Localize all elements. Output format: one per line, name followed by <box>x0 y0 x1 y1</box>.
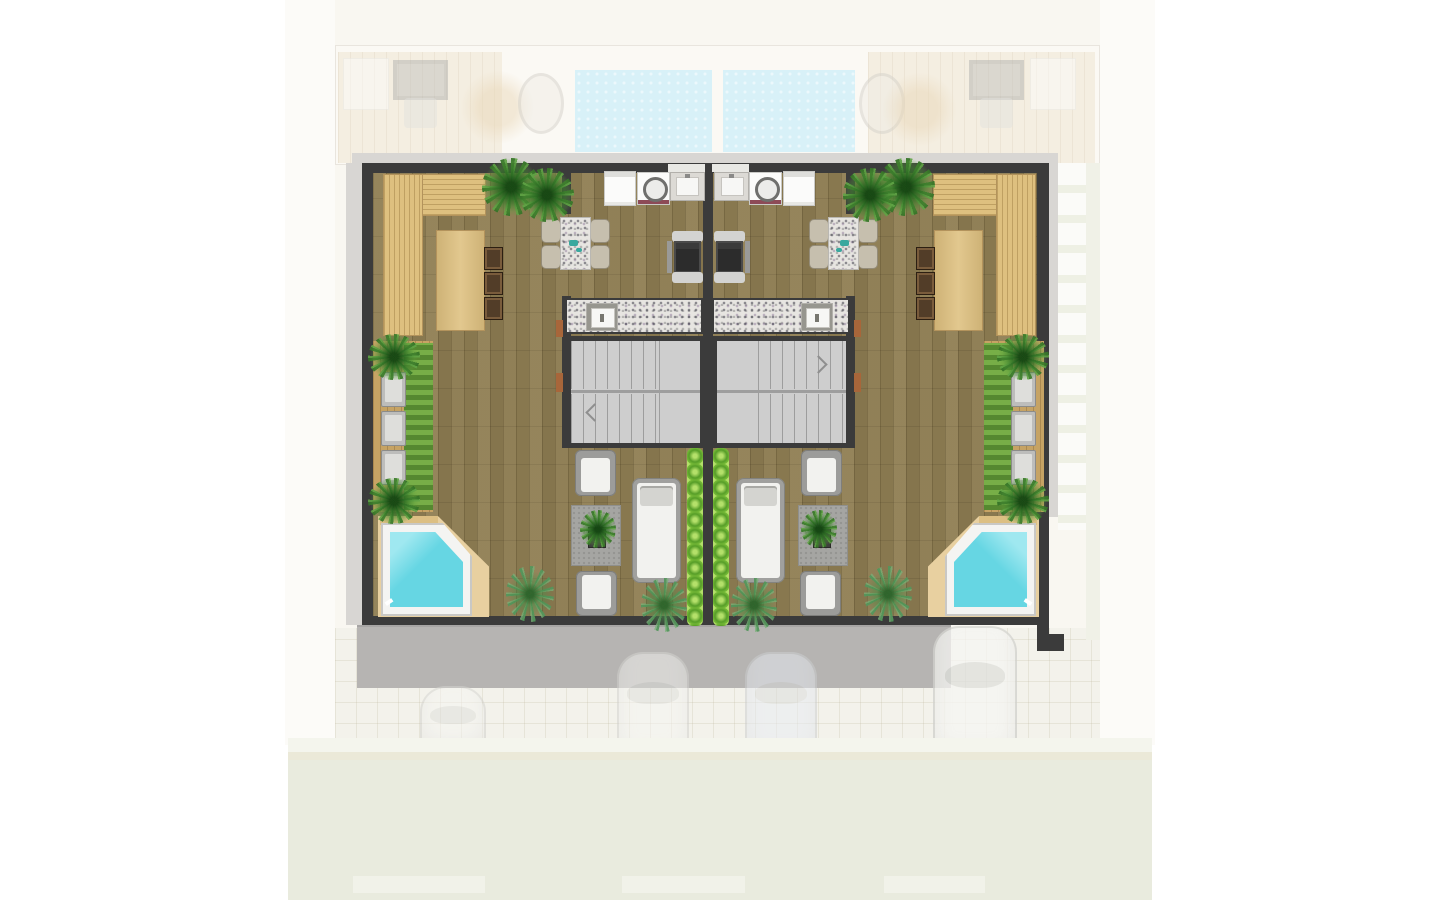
table-decor <box>569 240 578 246</box>
dining-chair <box>590 245 610 269</box>
corner-bench-side-left <box>383 174 423 336</box>
washing-machine-right <box>749 172 782 205</box>
armchair-right-top <box>801 450 842 496</box>
palm-bottom-right-b <box>864 566 912 622</box>
top-trim <box>352 153 1058 163</box>
rug-plant-left <box>580 510 616 548</box>
planter-lounger <box>1011 411 1036 446</box>
dining-chair <box>809 245 829 269</box>
dishwasher-right <box>783 171 815 206</box>
grill-shelf <box>745 241 750 273</box>
armchair-cushion <box>806 575 835 609</box>
dining-chair <box>541 219 561 243</box>
door-jamb-right-a <box>854 320 861 337</box>
sink-basin <box>721 177 744 196</box>
plant-top-right-b <box>843 168 897 222</box>
background-right-strip <box>1100 0 1155 745</box>
right-outer-strip <box>1086 163 1100 640</box>
door-jamb-left-a <box>556 320 563 337</box>
armchair-cushion <box>582 575 611 609</box>
ghost-table-right <box>1030 58 1076 110</box>
sink-basin <box>676 177 699 196</box>
counter-sink-left <box>586 303 618 331</box>
door-jamb-left-b <box>556 373 563 392</box>
stair-divider-right <box>717 390 846 393</box>
stair-flight-up-left <box>571 341 659 389</box>
left-trim <box>346 163 362 625</box>
chaise-lounge-right <box>736 478 785 583</box>
car-windshield <box>627 682 679 704</box>
bar-stool <box>916 297 935 320</box>
table-decor <box>836 248 842 252</box>
laundry-sink-left <box>670 172 705 201</box>
dining-chair <box>858 245 878 269</box>
stair-landing-line-right <box>758 341 759 443</box>
stair-landing-line-left <box>659 341 660 443</box>
background-left-strip <box>285 0 335 745</box>
washing-machine-left <box>637 172 670 205</box>
grill-station-left <box>672 231 703 283</box>
stair-flight-down-left <box>571 394 659 443</box>
armchair-left-top <box>575 450 616 496</box>
chaise-lounge-left <box>632 478 681 583</box>
dining-chair <box>541 245 561 269</box>
armchair-left-bottom <box>576 571 617 616</box>
sink-faucet <box>729 174 734 178</box>
dining-chair <box>590 219 610 243</box>
ghost-basket-left <box>518 73 564 134</box>
dining-chair <box>858 219 878 243</box>
ghost-chair-right <box>980 98 1013 128</box>
armchair-cushion <box>807 458 836 492</box>
armchair-cushion <box>581 458 610 492</box>
car-windshield <box>945 662 1005 688</box>
hedge-right <box>713 448 729 626</box>
counter-sink-right <box>801 303 833 331</box>
window-left <box>668 164 705 172</box>
parking-mark-2 <box>622 876 745 893</box>
plant-top-left-b <box>520 168 574 222</box>
ghost-pool-left <box>575 70 712 152</box>
grill-body <box>716 241 743 273</box>
planter-lounger <box>381 411 406 446</box>
bar-table-right <box>934 230 983 331</box>
lounger-pad <box>1015 415 1032 441</box>
plant-planter-left-bottom <box>368 478 420 524</box>
bar-table-left <box>436 230 485 331</box>
lounger-pad <box>1015 454 1032 480</box>
plant-planter-left-top <box>368 334 420 380</box>
bar-stool <box>484 272 503 295</box>
dining-chair <box>809 219 829 243</box>
parking-mark-3 <box>884 876 985 893</box>
grill-seat-bottom <box>672 272 703 283</box>
bar-stool <box>484 247 503 270</box>
window-right <box>712 164 749 172</box>
car-windshield <box>430 706 476 724</box>
floor-plan-canvas <box>0 0 1440 900</box>
wall-bottom <box>362 616 1049 625</box>
paver-path <box>1058 163 1088 530</box>
grill-shelf <box>667 241 672 273</box>
washer-drum <box>643 177 668 202</box>
palm-bottom-left-b <box>641 578 687 632</box>
grill-station-right <box>714 231 745 283</box>
sink-faucet <box>685 174 690 178</box>
bar-stool <box>916 247 935 270</box>
lounger-pad <box>385 454 402 480</box>
dishwasher-left <box>604 171 636 206</box>
stair-flight-down-right <box>758 394 846 443</box>
bar-stool <box>916 272 935 295</box>
chaise-backrest <box>744 486 777 506</box>
chaise-backrest <box>640 486 673 506</box>
stair-flight-up-right <box>758 341 846 389</box>
armchair-right-bottom <box>800 571 841 616</box>
palm-bottom-right-a <box>731 578 777 632</box>
table-decor <box>576 248 582 252</box>
parking-mark-1 <box>353 876 485 893</box>
wall-left <box>362 163 373 625</box>
bar-stool <box>484 297 503 320</box>
door-jamb-right-b <box>854 373 861 392</box>
hedge-left <box>687 448 703 626</box>
washer-drum <box>755 177 780 202</box>
stair-divider-left <box>571 390 700 393</box>
sink-faucet <box>600 314 604 322</box>
plant-planter-right-top <box>997 334 1049 380</box>
ghost-pool-right <box>723 70 855 152</box>
wall-right-foot <box>1049 634 1064 651</box>
sink-faucet <box>815 314 819 322</box>
grill-body <box>674 241 701 273</box>
ghost-chair-left <box>404 98 437 128</box>
rug-plant-right <box>801 510 837 548</box>
dining-table-right <box>828 217 859 270</box>
corner-bench-side-right <box>996 174 1036 336</box>
ghost-plants-right <box>882 72 957 147</box>
laundry-sink-right <box>714 172 749 201</box>
car-windshield <box>755 682 807 704</box>
ghost-grill-left <box>393 60 448 100</box>
grill-seat-bottom <box>714 272 745 283</box>
dining-table-left <box>560 217 591 270</box>
palm-bottom-left-a <box>506 566 554 622</box>
ghost-grill-right <box>969 60 1024 100</box>
ghost-table-left <box>343 58 389 110</box>
table-decor <box>840 240 849 246</box>
lounger-pad <box>385 415 402 441</box>
plant-planter-right-bottom <box>997 478 1049 524</box>
